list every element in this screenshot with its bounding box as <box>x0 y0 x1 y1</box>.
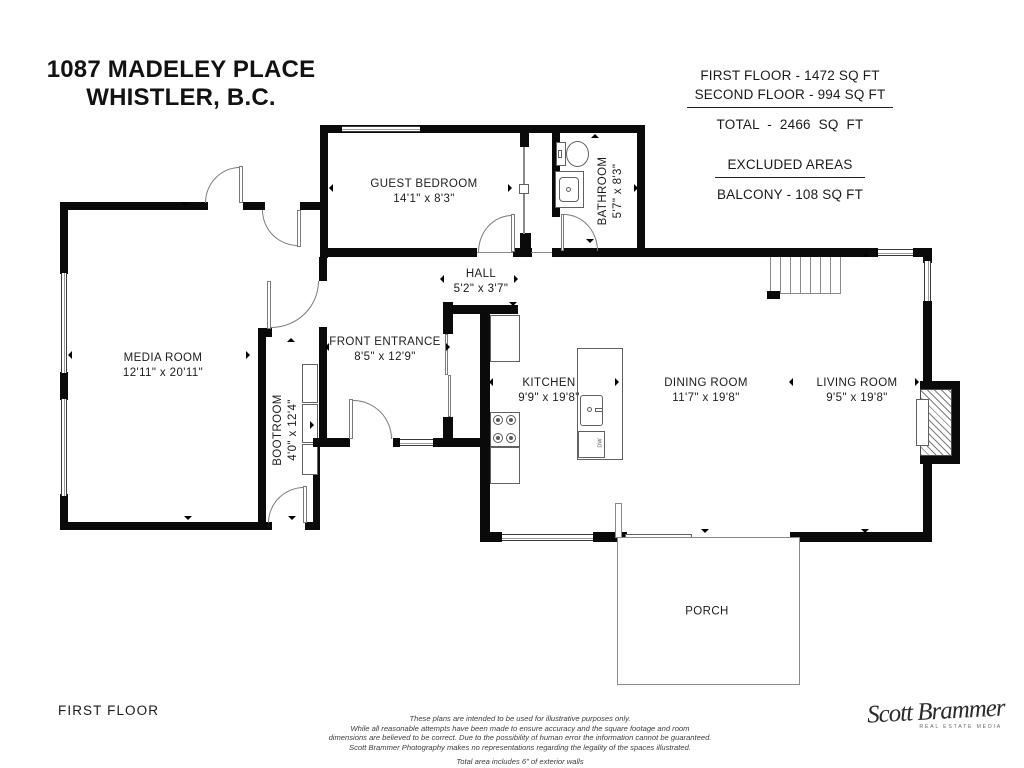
stair-tread <box>810 257 811 294</box>
wall <box>520 133 529 147</box>
room-dims: 11'7" x 19'8" <box>664 391 748 406</box>
disclaimer-note: Total area includes 6" of exterior walls <box>310 757 730 767</box>
dimension-arrow <box>246 351 250 359</box>
area-summary: FIRST FLOOR - 1472 SQ FT SECOND FLOOR - … <box>654 66 926 204</box>
room-label-guest-bedroom: GUEST BEDROOM 14'1" x 8'3" <box>370 177 477 207</box>
wall <box>258 328 266 530</box>
floor-label: FIRST FLOOR <box>58 703 159 718</box>
room-label-media-room: MEDIA ROOM 12'11" x 20'11" <box>123 351 203 381</box>
dimension-arrow <box>861 529 869 533</box>
door-swing <box>205 167 240 203</box>
burner-icon <box>493 433 503 443</box>
window <box>61 399 67 496</box>
dimension-arrow <box>615 378 619 386</box>
wall <box>60 372 68 400</box>
wall <box>480 532 502 542</box>
shelf <box>302 364 318 403</box>
room-name: DINING ROOM <box>664 376 748 391</box>
bathroom-door-swing <box>564 214 598 251</box>
porch-post <box>615 503 622 538</box>
sidelight-window <box>400 439 433 446</box>
room-name: FRONT ENTRANCE <box>329 335 440 350</box>
drain-icon <box>566 187 571 192</box>
closet-door <box>445 334 448 375</box>
excluded-areas-heading: EXCLUDED AREAS <box>654 155 926 174</box>
bedroom-door-swing <box>478 215 512 252</box>
room-dims: 8'5" x 12'9" <box>329 350 440 365</box>
address-line: 1087 MADELEY PLACE <box>40 56 322 84</box>
balcony-area: BALCONY - 108 SQ FT <box>654 185 926 204</box>
floor-plan-page: 1087 MADELEY PLACE WHISTLER, B.C. FIRST … <box>0 0 1024 768</box>
room-label-front-entrance: FRONT ENTRANCE 8'5" x 12'9" <box>329 335 440 365</box>
room-label-kitchen: KITCHEN 9'9" x 19'8" <box>518 376 579 406</box>
fireplace-surround <box>920 456 960 464</box>
dimension-arrow <box>287 338 295 342</box>
wall <box>513 248 532 257</box>
fireplace-surround <box>952 389 960 457</box>
disclaimer: These plans are intended to be used for … <box>310 714 730 767</box>
dimension-arrow <box>288 516 296 520</box>
stair-tread <box>840 257 841 294</box>
room-label-bathroom: BATHROOM 5'7" x 8'3" <box>596 157 626 226</box>
room-name: BOOTROOM <box>271 394 286 466</box>
room-name: GUEST BEDROOM <box>370 177 477 192</box>
dimension-arrow <box>509 302 517 306</box>
wall <box>790 532 932 542</box>
dimension-arrow <box>514 275 518 283</box>
closet-door <box>448 375 451 417</box>
dimension-arrow <box>634 184 638 192</box>
room-name: LIVING ROOM <box>816 376 897 391</box>
wall <box>443 417 453 447</box>
room-name: KITCHEN <box>518 376 579 391</box>
stair-rail <box>770 293 841 294</box>
wall <box>480 305 490 542</box>
room-dims: 5'2" x 3'7" <box>454 282 509 297</box>
room-label-hall: HALL 5'2" x 3'7" <box>454 267 509 297</box>
firebox <box>916 399 929 446</box>
wall <box>637 125 645 257</box>
first-floor-area: FIRST FLOOR - 1472 SQ FT <box>654 66 926 85</box>
dimension-arrow <box>489 378 493 386</box>
wall <box>393 438 400 447</box>
toilet-button <box>558 150 562 158</box>
wall <box>320 125 328 258</box>
photographer-logo: Scott Brammer REAL ESTATE MEDIA <box>856 698 1016 730</box>
kitchen-counter <box>490 315 520 362</box>
excluded-divider <box>715 177 865 178</box>
dimension-arrow <box>591 134 599 138</box>
room-label-porch: PORCH <box>685 605 729 620</box>
stair-tread <box>820 257 821 294</box>
wall <box>60 202 68 274</box>
wall <box>266 522 272 530</box>
dimension-arrow <box>508 184 512 192</box>
burner-icon <box>506 433 516 443</box>
kitchen-counter <box>490 447 520 484</box>
dimension-arrow <box>446 343 450 351</box>
wall <box>443 315 453 334</box>
shelf <box>302 444 318 475</box>
door-swing <box>262 210 298 246</box>
room-dims: 14'1" x 8'3" <box>370 192 477 207</box>
wall <box>243 202 265 210</box>
disclaimer-line: These plans are intended to be used for … <box>310 714 730 724</box>
dimension-arrow <box>184 516 192 520</box>
threshold <box>477 252 513 253</box>
dishwasher-label: DW <box>598 438 604 447</box>
front-door-swing <box>353 400 392 439</box>
wall <box>319 257 327 281</box>
stair-tread <box>790 257 791 294</box>
disclaimer-line: dimensions are believed to be correct. D… <box>310 733 730 743</box>
window <box>61 273 67 373</box>
door-swing <box>268 487 304 523</box>
wall <box>300 202 320 210</box>
wall <box>923 301 932 382</box>
pocket-door-handle <box>519 184 529 194</box>
summary-divider <box>687 107 893 108</box>
room-dims: 9'5" x 19'8" <box>816 391 897 406</box>
dimension-arrow <box>181 202 189 206</box>
window <box>924 261 931 302</box>
threshold <box>531 252 552 253</box>
wall <box>313 438 350 447</box>
faucet-handle <box>595 408 603 412</box>
stair-tread <box>780 257 781 294</box>
room-dims: 5'7" x 8'3" <box>611 157 626 226</box>
toilet-bowl <box>566 141 589 167</box>
stair-tread <box>800 257 801 294</box>
disclaimer-line: While all reasonable attempts have been … <box>310 724 730 734</box>
window <box>502 534 593 541</box>
room-label-bootroom: BOOTROOM 4'0" x 12'4" <box>271 394 301 466</box>
burner-icon <box>506 415 516 425</box>
wall <box>60 522 266 530</box>
room-name: MEDIA ROOM <box>123 351 203 366</box>
fireplace-surround <box>920 381 960 389</box>
burner-icon <box>493 415 503 425</box>
room-dims: 12'11" x 20'11" <box>123 366 203 381</box>
faucet-icon <box>587 407 592 412</box>
dimension-arrow <box>586 239 594 243</box>
dimension-arrow <box>310 421 314 429</box>
dimension-arrow <box>440 275 444 283</box>
second-floor-area: SECOND FLOOR - 994 SQ FT <box>654 85 926 104</box>
dimension-arrow <box>862 253 870 257</box>
stair-tread <box>830 257 831 294</box>
stair-tread <box>770 257 771 294</box>
room-dims: 9'9" x 19'8" <box>518 391 579 406</box>
dimension-arrow <box>329 184 333 192</box>
dimension-arrow <box>915 378 919 386</box>
window <box>342 126 420 132</box>
stair-newel <box>767 291 780 299</box>
room-dims: 4'0" x 12'4" <box>286 394 301 466</box>
wall <box>258 328 272 337</box>
door-swing <box>271 281 319 328</box>
wall <box>552 248 878 257</box>
dimension-arrow <box>789 378 793 386</box>
page-title: 1087 MADELEY PLACE WHISTLER, B.C. <box>40 56 322 112</box>
wall <box>328 248 477 257</box>
dimension-arrow <box>701 529 709 533</box>
wall <box>433 438 480 447</box>
total-area: TOTAL - 2466 SQ FT <box>654 115 926 134</box>
dimension-arrow <box>68 351 72 359</box>
room-name: HALL <box>454 267 509 282</box>
room-label-dining-room: DINING ROOM 11'7" x 19'8" <box>664 376 748 406</box>
wall <box>923 464 932 532</box>
room-name: BATHROOM <box>596 157 611 226</box>
window <box>878 249 913 256</box>
disclaimer-line: Scott Brammer Photography makes no repre… <box>310 743 730 753</box>
room-name: PORCH <box>685 605 729 620</box>
room-label-living-room: LIVING ROOM 9'5" x 19'8" <box>816 376 897 406</box>
city-line: WHISTLER, B.C. <box>40 84 322 112</box>
